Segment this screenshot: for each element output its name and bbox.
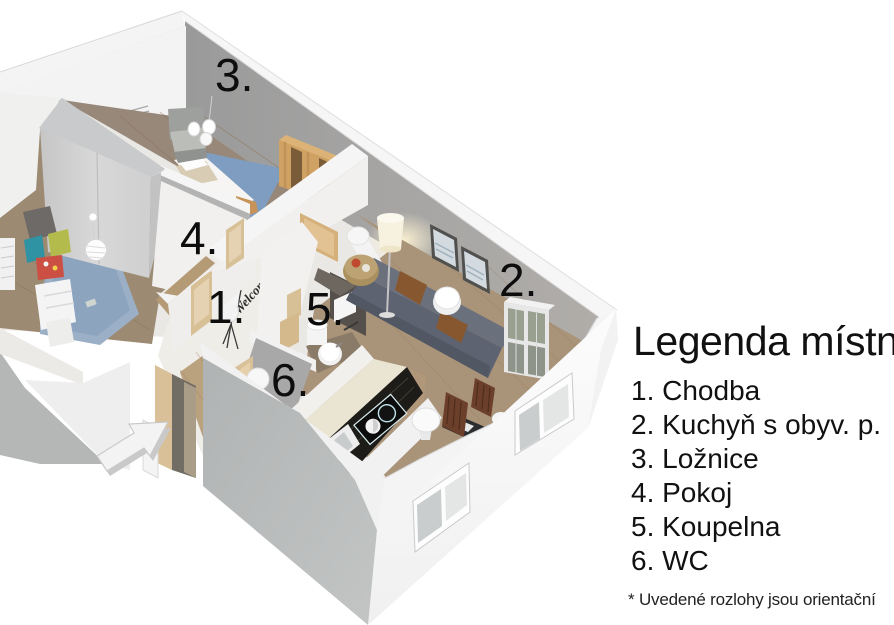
svg-text:5.: 5. [306, 283, 344, 335]
svg-text:3.: 3. [215, 49, 253, 101]
svg-text:2.: 2. [499, 254, 537, 306]
svg-text:4.: 4. [180, 212, 218, 264]
svg-text:6.: 6. [271, 354, 309, 406]
svg-text:1.: 1. [207, 281, 245, 333]
